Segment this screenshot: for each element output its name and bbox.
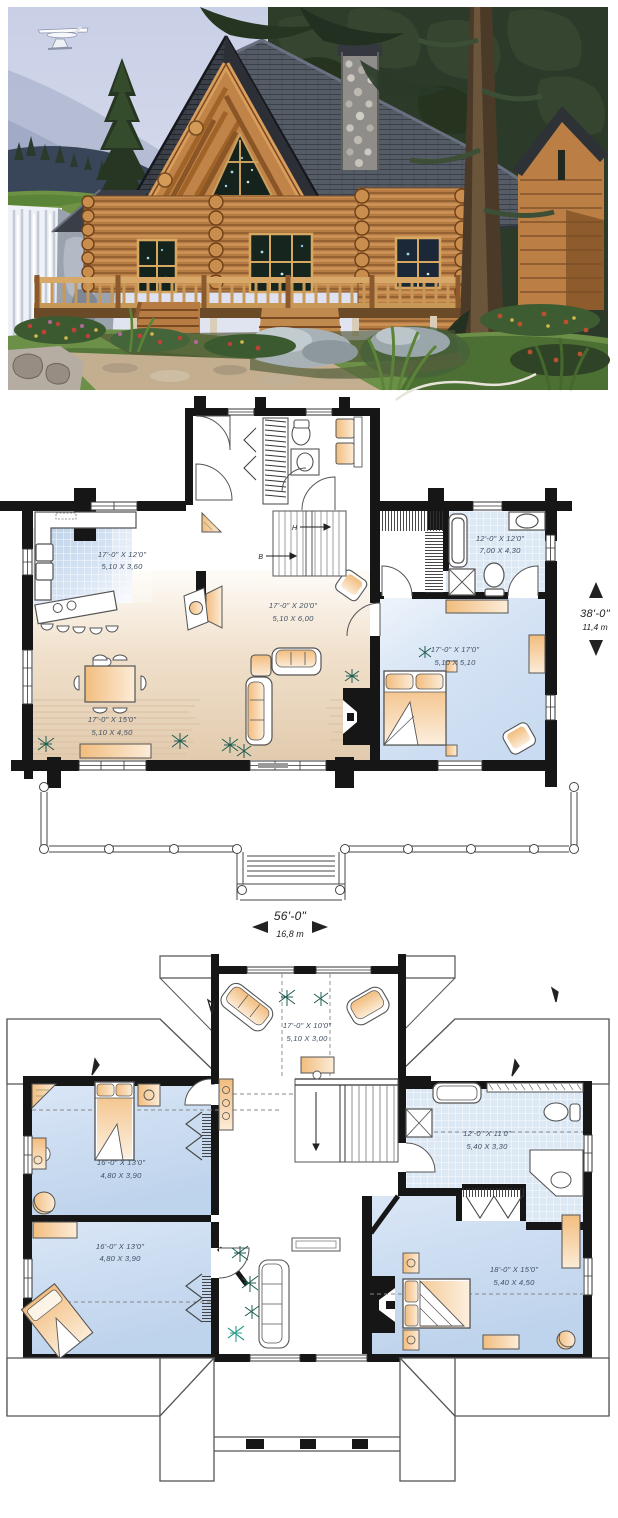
svg-text:12'-0" X 11'0": 12'-0" X 11'0"	[463, 1129, 511, 1138]
svg-text:12'-0" X 12'0": 12'-0" X 12'0"	[476, 534, 524, 543]
svg-text:5,40 X 3,30: 5,40 X 3,30	[466, 1142, 508, 1151]
svg-text:5,10 X 3,60: 5,10 X 3,60	[101, 562, 143, 571]
svg-text:17'-0" X 20'0": 17'-0" X 20'0"	[269, 601, 317, 610]
svg-text:18'-0" X 15'0": 18'-0" X 15'0"	[490, 1265, 538, 1274]
svg-text:4,80 X 3,90: 4,80 X 3,90	[99, 1254, 141, 1263]
svg-text:4,80 X 3,90: 4,80 X 3,90	[100, 1171, 142, 1180]
svg-text:17'-0" X 17'0": 17'-0" X 17'0"	[431, 645, 479, 654]
svg-text:17'-0" X 10'0": 17'-0" X 10'0"	[283, 1021, 331, 1030]
svg-text:11,4 m: 11,4 m	[582, 622, 607, 632]
svg-text:5,10 X 5,10: 5,10 X 5,10	[434, 658, 476, 667]
svg-text:16,8 m: 16,8 m	[276, 929, 304, 939]
svg-text:5,40 X 4,50: 5,40 X 4,50	[493, 1278, 535, 1287]
svg-text:16'-0" X 13'0": 16'-0" X 13'0"	[96, 1242, 144, 1251]
svg-text:56'-0": 56'-0"	[274, 909, 307, 923]
svg-text:17'-0" X 12'0": 17'-0" X 12'0"	[98, 550, 146, 559]
svg-text:5,10 X 4,50: 5,10 X 4,50	[91, 728, 133, 737]
svg-text:17'-0" X 15'0": 17'-0" X 15'0"	[88, 715, 136, 724]
svg-text:5,10 X 3,00: 5,10 X 3,00	[286, 1034, 328, 1043]
svg-text:5,10 X 6,00: 5,10 X 6,00	[272, 614, 314, 623]
svg-text:7,00 X 4,30: 7,00 X 4,30	[479, 546, 521, 555]
svg-text:16'-0" X 13'0": 16'-0" X 13'0"	[97, 1158, 145, 1167]
svg-text:B: B	[258, 554, 263, 561]
svg-text:38'-0": 38'-0"	[580, 608, 611, 620]
